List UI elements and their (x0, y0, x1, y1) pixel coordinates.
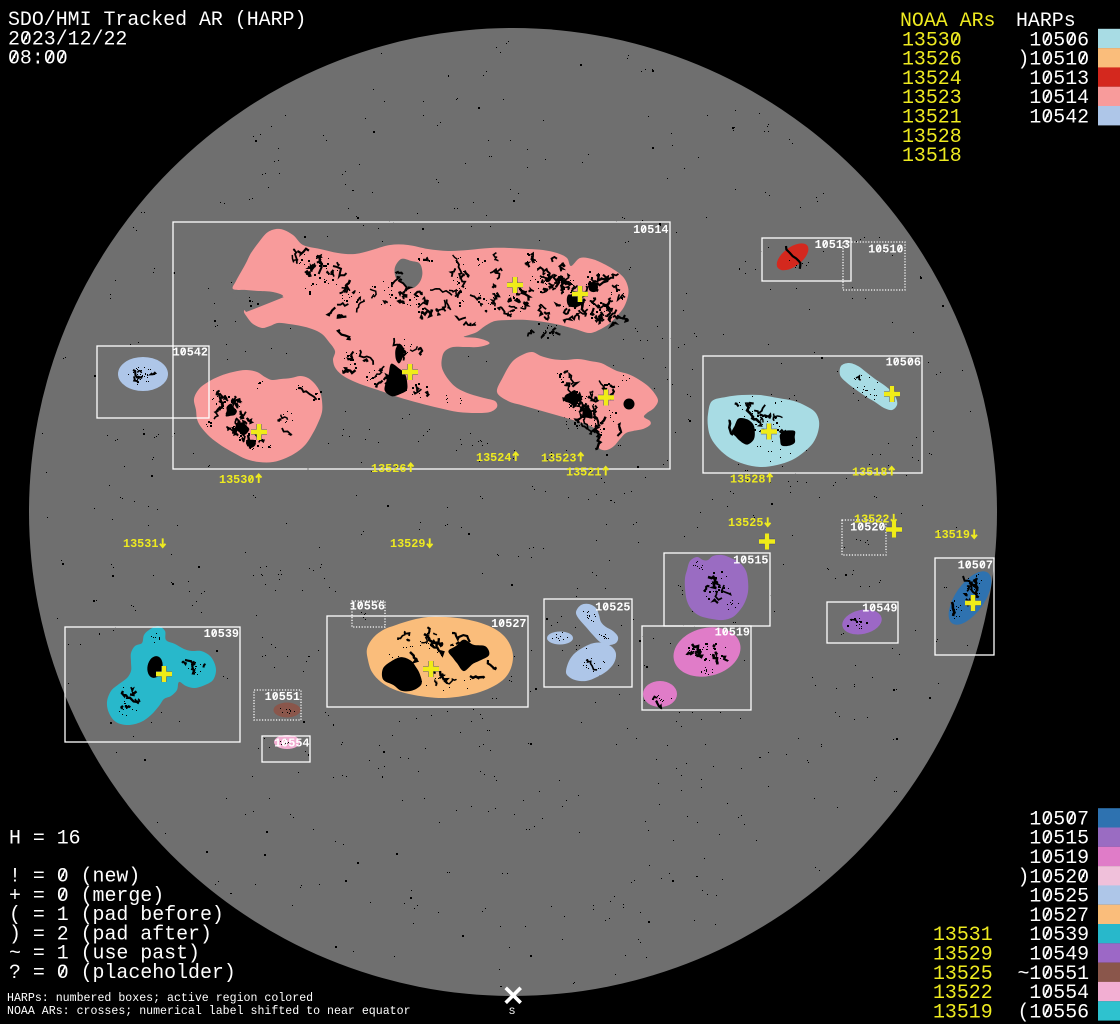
svg-text:13519: 13519 (935, 528, 970, 542)
svg-text:13531: 13531 (123, 537, 158, 551)
svg-text:NOAA ARs: crosses; numerical l: NOAA ARs: crosses; numerical label shift… (7, 1005, 411, 1018)
svg-text:(10556: (10556 (1018, 1000, 1090, 1023)
svg-text:13518: 13518 (852, 466, 887, 480)
svg-text:10551: 10551 (265, 690, 300, 704)
svg-text:10549: 10549 (862, 602, 897, 616)
svg-text:13529: 13529 (390, 537, 425, 551)
svg-text:13518: 13518 (902, 144, 962, 167)
svg-text:13519: 13519 (933, 1000, 993, 1023)
svg-text:H = 16: H = 16 (9, 827, 81, 850)
svg-text:10554: 10554 (274, 737, 309, 751)
svg-text:13524: 13524 (476, 451, 511, 465)
svg-text:S: S (509, 1006, 515, 1018)
svg-text:10510: 10510 (868, 243, 903, 257)
svg-text:10506: 10506 (886, 356, 921, 370)
svg-text:13523: 13523 (541, 452, 576, 466)
svg-text:10525: 10525 (595, 601, 630, 615)
svg-text:10539: 10539 (204, 627, 239, 641)
svg-text:10507: 10507 (958, 559, 993, 573)
svg-text:13522: 13522 (854, 513, 889, 527)
svg-text:HARPs: numbered boxes; active: HARPs: numbered boxes; active region col… (7, 992, 313, 1005)
svg-text:13530: 13530 (219, 473, 254, 487)
svg-text:10515: 10515 (733, 554, 768, 568)
svg-text:10514: 10514 (633, 223, 668, 237)
svg-text:10542: 10542 (173, 346, 208, 360)
svg-text:? = 0 (placeholder): ? = 0 (placeholder) (9, 961, 236, 984)
svg-text:08:00: 08:00 (8, 47, 68, 70)
svg-text:10527: 10527 (491, 617, 526, 631)
svg-text:10542: 10542 (1018, 106, 1090, 129)
svg-text:13521: 13521 (566, 466, 601, 480)
svg-text:13525: 13525 (728, 516, 763, 530)
svg-text:10513: 10513 (815, 238, 850, 252)
svg-text:13526: 13526 (371, 462, 406, 476)
svg-text:10556: 10556 (350, 600, 385, 614)
svg-text:10519: 10519 (715, 626, 750, 640)
svg-text:13528: 13528 (730, 473, 765, 487)
